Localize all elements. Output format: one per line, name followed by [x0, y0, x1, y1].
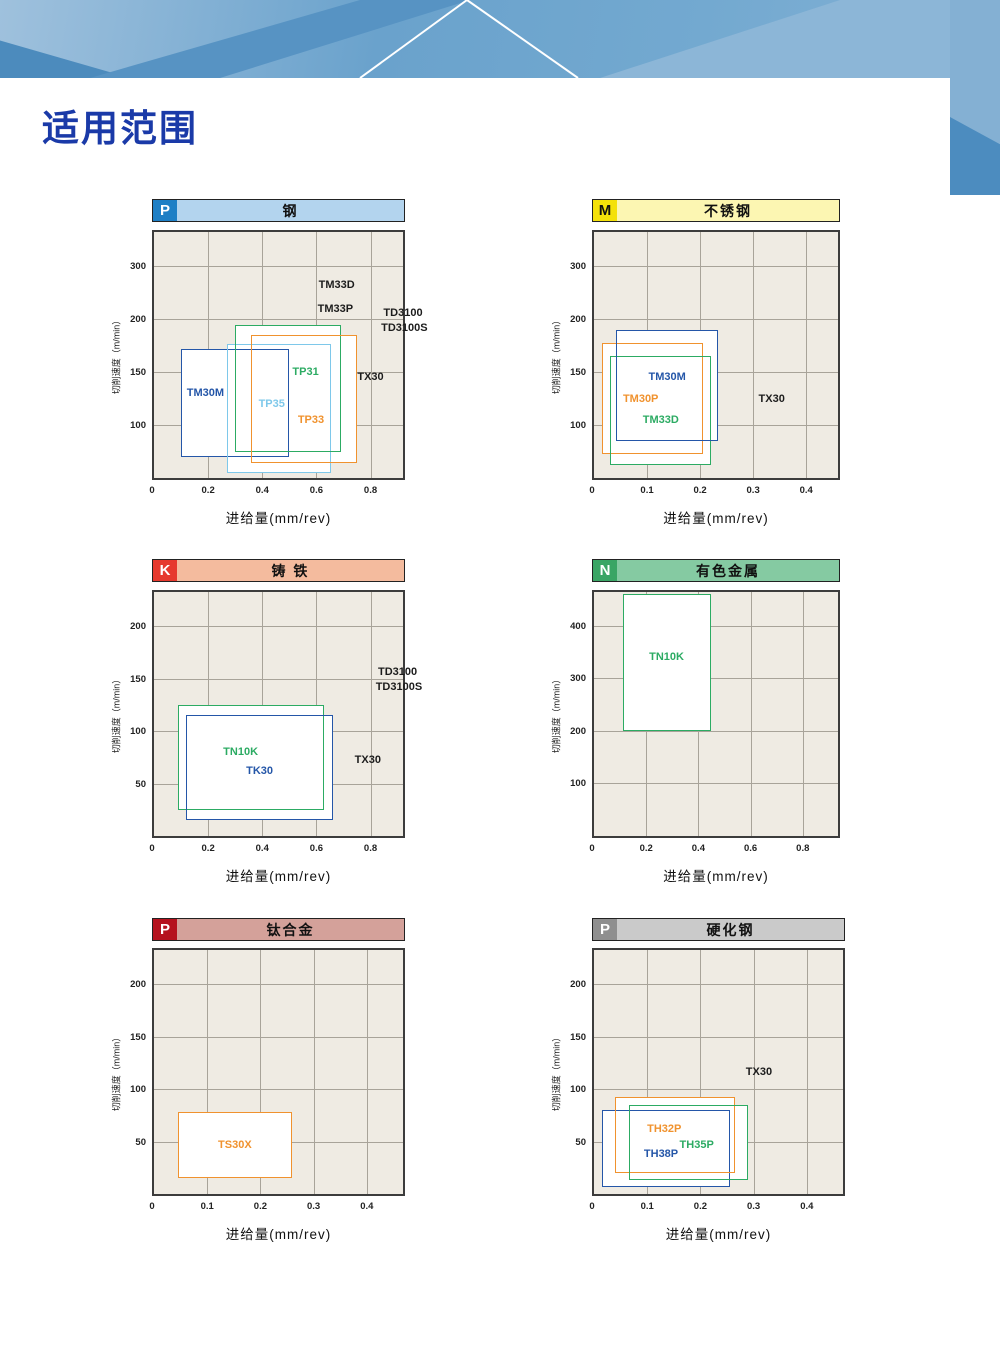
chart-title: 铸 铁: [177, 560, 404, 581]
chart-title: 有色金属: [617, 560, 839, 581]
x-axis-title: 进给量(mm/rev): [592, 1223, 845, 1243]
chart-header-titanium-alloy: P钛合金: [152, 918, 405, 941]
x-axis-title: 进给量(mm/rev): [152, 865, 405, 885]
plot-area-titanium-alloy: TS30X: [152, 948, 405, 1196]
grid-line-horizontal: [594, 731, 838, 732]
x-tick-label-0: 0: [575, 1201, 609, 1212]
x-tick-label-0.2: 0.2: [629, 843, 663, 854]
grid-line-vertical: [371, 592, 372, 836]
y-axis-title: 切削速度（m/min）: [550, 1033, 563, 1112]
plot-area-hardened-steel: TH32PTH35PTH38PTX30: [592, 948, 845, 1196]
chart-block-non-ferrous-metal: N有色金属TN10K00.20.40.60.8100200300400进给量(m…: [532, 559, 880, 893]
grid-line-horizontal: [594, 266, 838, 267]
x-tick-label-0: 0: [575, 843, 609, 854]
y-tick-label-50: 50: [112, 779, 146, 790]
banner-side-band: [950, 0, 1000, 195]
grid-line-horizontal: [154, 1037, 403, 1038]
x-tick-label-0.8: 0.8: [786, 843, 820, 854]
y-axis-title: 切削速度（m/min）: [550, 316, 563, 395]
grid-line-vertical: [803, 592, 804, 836]
x-tick-label-0.4: 0.4: [681, 843, 715, 854]
plot-area-cast-iron: TN10KTK30TX30TD3100TD3100S: [152, 590, 405, 838]
label-TD3100S: TD3100S: [376, 681, 422, 693]
grid-line-horizontal: [154, 679, 403, 680]
y-tick-label-400: 400: [552, 621, 586, 632]
chart-block-titanium-alloy: P钛合金TS30X00.10.20.30.450100150200进给量(mm/…: [92, 918, 445, 1251]
chart-block-steel: P钢TM30MTP35TP31TP33TX30TM33DTM33PTD3100T…: [92, 199, 445, 535]
x-axis-title: 进给量(mm/rev): [152, 1223, 405, 1243]
grid-line-horizontal: [154, 266, 403, 267]
grid-line-horizontal: [154, 1089, 403, 1090]
iso-class-badge: P: [153, 919, 177, 940]
y-tick-label-50: 50: [112, 1137, 146, 1148]
label-TM33D: TM33D: [319, 279, 355, 291]
plot-area-stainless-steel: TM30MTM30PTM33DTX30: [592, 230, 840, 480]
grid-line-vertical: [314, 950, 315, 1194]
y-tick-label-200: 200: [552, 979, 586, 990]
y-tick-label-50: 50: [552, 1137, 586, 1148]
label-TM30M: TM30M: [187, 387, 224, 399]
label-TX30: TX30: [357, 371, 383, 383]
plot-area-steel: TM30MTP35TP31TP33TX30TM33DTM33PTD3100TD3…: [152, 230, 405, 480]
x-tick-label-0.4: 0.4: [245, 485, 279, 496]
label-TM33D: TM33D: [643, 414, 679, 426]
x-tick-label-0.2: 0.2: [191, 843, 225, 854]
grid-line-horizontal: [154, 319, 403, 320]
y-tick-label-200: 200: [112, 621, 146, 632]
grid-line-horizontal: [594, 319, 838, 320]
chart-header-steel: P钢: [152, 199, 405, 222]
iso-class-badge: N: [593, 560, 617, 581]
grid-line-vertical: [371, 232, 372, 478]
label-TD3100: TD3100: [378, 666, 417, 678]
label-TD3100S: TD3100S: [381, 322, 427, 334]
grid-line-horizontal: [594, 783, 838, 784]
x-tick-label-0.1: 0.1: [630, 485, 664, 496]
label-TN10K: TN10K: [649, 651, 684, 663]
label-TD3100: TD3100: [383, 307, 422, 319]
x-tick-label-0.1: 0.1: [630, 1201, 664, 1212]
label-TH35P: TH35P: [680, 1139, 714, 1151]
chart-header-non-ferrous-metal: N有色金属: [592, 559, 840, 582]
chart-header-stainless-steel: M不锈钢: [592, 199, 840, 222]
y-tick-label-300: 300: [552, 261, 586, 272]
x-tick-label-0.2: 0.2: [243, 1201, 277, 1212]
y-tick-label-100: 100: [112, 420, 146, 431]
chart-title: 不锈钢: [617, 200, 839, 221]
grid-line-horizontal: [594, 1089, 843, 1090]
iso-class-badge: P: [153, 200, 177, 221]
side-band-triangle: [950, 0, 1000, 195]
chart-header-hardened-steel: P硬化钢: [592, 918, 845, 941]
iso-class-badge: K: [153, 560, 177, 581]
iso-class-badge: M: [593, 200, 617, 221]
y-tick-label-100: 100: [552, 420, 586, 431]
chart-block-cast-iron: K铸 铁TN10KTK30TX30TD3100TD3100S00.20.40.6…: [92, 559, 445, 893]
grid-line-horizontal: [154, 626, 403, 627]
grid-line-vertical: [753, 232, 754, 478]
chart-title: 钢: [177, 200, 404, 221]
x-tick-label-0: 0: [575, 485, 609, 496]
x-tick-label-0.3: 0.3: [297, 1201, 331, 1212]
chart-block-stainless-steel: M不锈钢TM30MTM30PTM33DTX3000.10.20.30.41001…: [532, 199, 880, 535]
x-tick-label-0.3: 0.3: [737, 1201, 771, 1212]
x-tick-label-0.4: 0.4: [789, 485, 823, 496]
x-tick-label-0.8: 0.8: [354, 843, 388, 854]
grid-line-vertical: [751, 592, 752, 836]
grid-line-horizontal: [594, 984, 843, 985]
x-tick-label-0: 0: [135, 843, 169, 854]
x-tick-label-0.2: 0.2: [683, 1201, 717, 1212]
chart-block-hardened-steel: P硬化钢TH32PTH35PTH38PTX3000.10.20.30.45010…: [532, 918, 885, 1251]
x-tick-label-0.3: 0.3: [736, 485, 770, 496]
label-TM33P: TM33P: [318, 303, 353, 315]
x-tick-label-0.6: 0.6: [299, 485, 333, 496]
catalog-page: 适用范围 P钢TM30MTP35TP31TP33TX30TM33DTM33PTD…: [0, 0, 1000, 1357]
grid-line-vertical: [807, 950, 808, 1194]
grid-line-vertical: [806, 232, 807, 478]
banner-peak-lines-icon: [0, 0, 1000, 78]
grid-line-horizontal: [154, 984, 403, 985]
y-axis-title: 切削速度（m/min）: [110, 316, 123, 395]
label-TH38P: TH38P: [644, 1148, 678, 1160]
iso-class-badge: P: [593, 919, 617, 940]
label-TX30: TX30: [759, 393, 785, 405]
x-tick-label-0.8: 0.8: [354, 485, 388, 496]
x-tick-label-0.2: 0.2: [683, 485, 717, 496]
label-TM30P: TM30P: [623, 393, 658, 405]
banner-graphic: [0, 0, 1000, 78]
y-axis-title: 切削速度（m/min）: [110, 675, 123, 754]
label-TX30: TX30: [355, 754, 381, 766]
y-tick-label-100: 100: [552, 778, 586, 789]
chart-title: 钛合金: [177, 919, 404, 940]
page-title: 适用范围: [42, 98, 198, 152]
x-tick-label-0.4: 0.4: [245, 843, 279, 854]
chart-title: 硬化钢: [617, 919, 844, 940]
grid-line-vertical: [367, 950, 368, 1194]
label-TM30M: TM30M: [649, 371, 686, 383]
x-axis-title: 进给量(mm/rev): [152, 507, 405, 527]
x-tick-label-0.1: 0.1: [190, 1201, 224, 1212]
plot-area-non-ferrous-metal: TN10K: [592, 590, 840, 838]
x-tick-label-0.4: 0.4: [350, 1201, 384, 1212]
y-axis-title: 切削速度（m/min）: [110, 1033, 123, 1112]
label-TP33: TP33: [298, 414, 324, 426]
label-TH32P: TH32P: [647, 1123, 681, 1135]
x-tick-label-0.6: 0.6: [734, 843, 768, 854]
x-tick-label-0: 0: [135, 485, 169, 496]
label-TP35: TP35: [259, 398, 285, 410]
x-axis-title: 进给量(mm/rev): [592, 865, 840, 885]
label-TS30X: TS30X: [218, 1139, 252, 1151]
x-tick-label-0.6: 0.6: [299, 843, 333, 854]
label-TK30: TK30: [246, 765, 273, 777]
x-tick-label-0.4: 0.4: [790, 1201, 824, 1212]
x-tick-label-0.2: 0.2: [191, 485, 225, 496]
chart-header-cast-iron: K铸 铁: [152, 559, 405, 582]
label-TP31: TP31: [292, 366, 318, 378]
y-axis-title: 切削速度（m/min）: [550, 675, 563, 754]
x-tick-label-0: 0: [135, 1201, 169, 1212]
label-TX30: TX30: [746, 1066, 772, 1078]
y-tick-label-200: 200: [112, 979, 146, 990]
x-axis-title: 进给量(mm/rev): [592, 507, 840, 527]
label-TN10K: TN10K: [223, 746, 258, 758]
y-tick-label-300: 300: [112, 261, 146, 272]
grid-line-horizontal: [594, 1037, 843, 1038]
